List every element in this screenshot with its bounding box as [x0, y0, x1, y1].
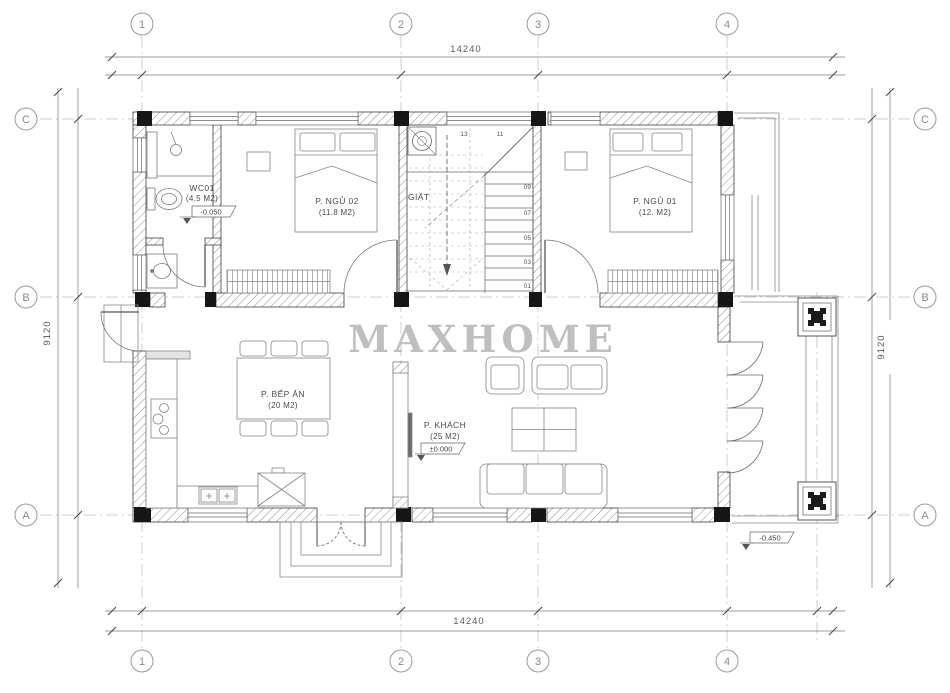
svg-text:±0.000: ±0.000: [430, 445, 453, 454]
window-left-shower: [133, 138, 146, 172]
window-top-bedroom1: [551, 112, 600, 125]
stair-num-09: 09: [524, 184, 532, 191]
stair-num-05: 05: [524, 235, 532, 242]
porch-column-top: [798, 298, 836, 336]
grid-col-4-bottom: 4: [724, 656, 730, 668]
stair-num-11: 11: [497, 131, 504, 138]
wc-area: (4.5 M2): [186, 194, 218, 203]
window-top-stair: [447, 112, 533, 125]
grid-row-a-right: A: [921, 510, 929, 522]
stair-num-01: 01: [524, 283, 532, 290]
grid-row-c-right: C: [921, 114, 929, 126]
window-east-bedroom1: [721, 195, 734, 260]
wc-name: WC01: [189, 183, 214, 193]
grid-row-c-left: C: [22, 114, 30, 126]
grid-col-1-top: 1: [139, 19, 145, 31]
stair-num-03: 03: [524, 259, 532, 266]
dim-bottom: 14240: [453, 616, 484, 627]
grid-row-b-right: B: [921, 292, 928, 304]
grid-row-a-left: A: [22, 510, 30, 522]
living-area: (25 M2): [430, 432, 460, 441]
living-name: P. KHÁCH: [424, 420, 466, 430]
bedroom1-area: (12. M2): [639, 208, 671, 217]
grid-col-2-bottom: 2: [398, 656, 404, 668]
bed2-pillow: [300, 133, 335, 151]
kitchen-name: P. BẾP ĂN: [261, 389, 305, 399]
kitchen-area: (20 M2): [268, 401, 298, 410]
window-bottom-living-2: [618, 508, 692, 522]
porch-column-bottom: [798, 482, 836, 520]
grid-row-b-left: B: [22, 292, 29, 304]
stove: [151, 399, 177, 438]
stair-num-13: 13: [460, 131, 468, 138]
dim-top: 14240: [450, 44, 481, 55]
window-bottom-living-1: [433, 508, 507, 522]
svg-text:-0.050: -0.050: [200, 208, 221, 217]
grid-col-2-top: 2: [398, 19, 404, 31]
maxhome-watermark: MAXHOME: [348, 317, 618, 361]
bedroom1-name: P. NGỦ 01: [633, 195, 677, 206]
bed1-pillow: [613, 133, 643, 151]
dim-left: 9120: [42, 320, 53, 345]
window-bottom-kitchen: [188, 508, 247, 522]
washing-machine: [408, 127, 436, 155]
window-left-vanity: [133, 255, 146, 290]
window-top-bedroom2: [256, 112, 358, 125]
window-top-wc: [190, 112, 238, 125]
bed1-nightstand: [565, 152, 587, 170]
bedroom2-name: P. NGỦ 02: [315, 195, 359, 206]
dim-right: 9120: [876, 334, 887, 359]
laundry-name: GIẶT: [408, 192, 429, 202]
tv: [408, 413, 412, 457]
svg-text:-0.450: -0.450: [759, 534, 780, 543]
kitchen-sink: [199, 487, 237, 504]
stair-num-07: 07: [524, 210, 532, 217]
floor-plan-drawing: 14240 14240 9120 9120 1 2 3 4 1 2 3 4 C …: [0, 0, 950, 693]
floor-plan-canvas: 14240 14240 9120 9120 1 2 3 4 1 2 3 4 C …: [0, 0, 950, 693]
grid-col-4-top: 4: [724, 19, 730, 31]
grid-col-3-bottom: 3: [535, 656, 541, 668]
fridge-cabinet: [258, 468, 305, 506]
grid-col-3-top: 3: [535, 19, 541, 31]
bedroom2-area: (11.8 M2): [319, 208, 355, 217]
grid-col-1-bottom: 1: [139, 656, 145, 668]
bed2-nightstand: [247, 152, 270, 171]
bed2-pillow: [340, 133, 375, 151]
bed1-pillow: [652, 133, 682, 151]
